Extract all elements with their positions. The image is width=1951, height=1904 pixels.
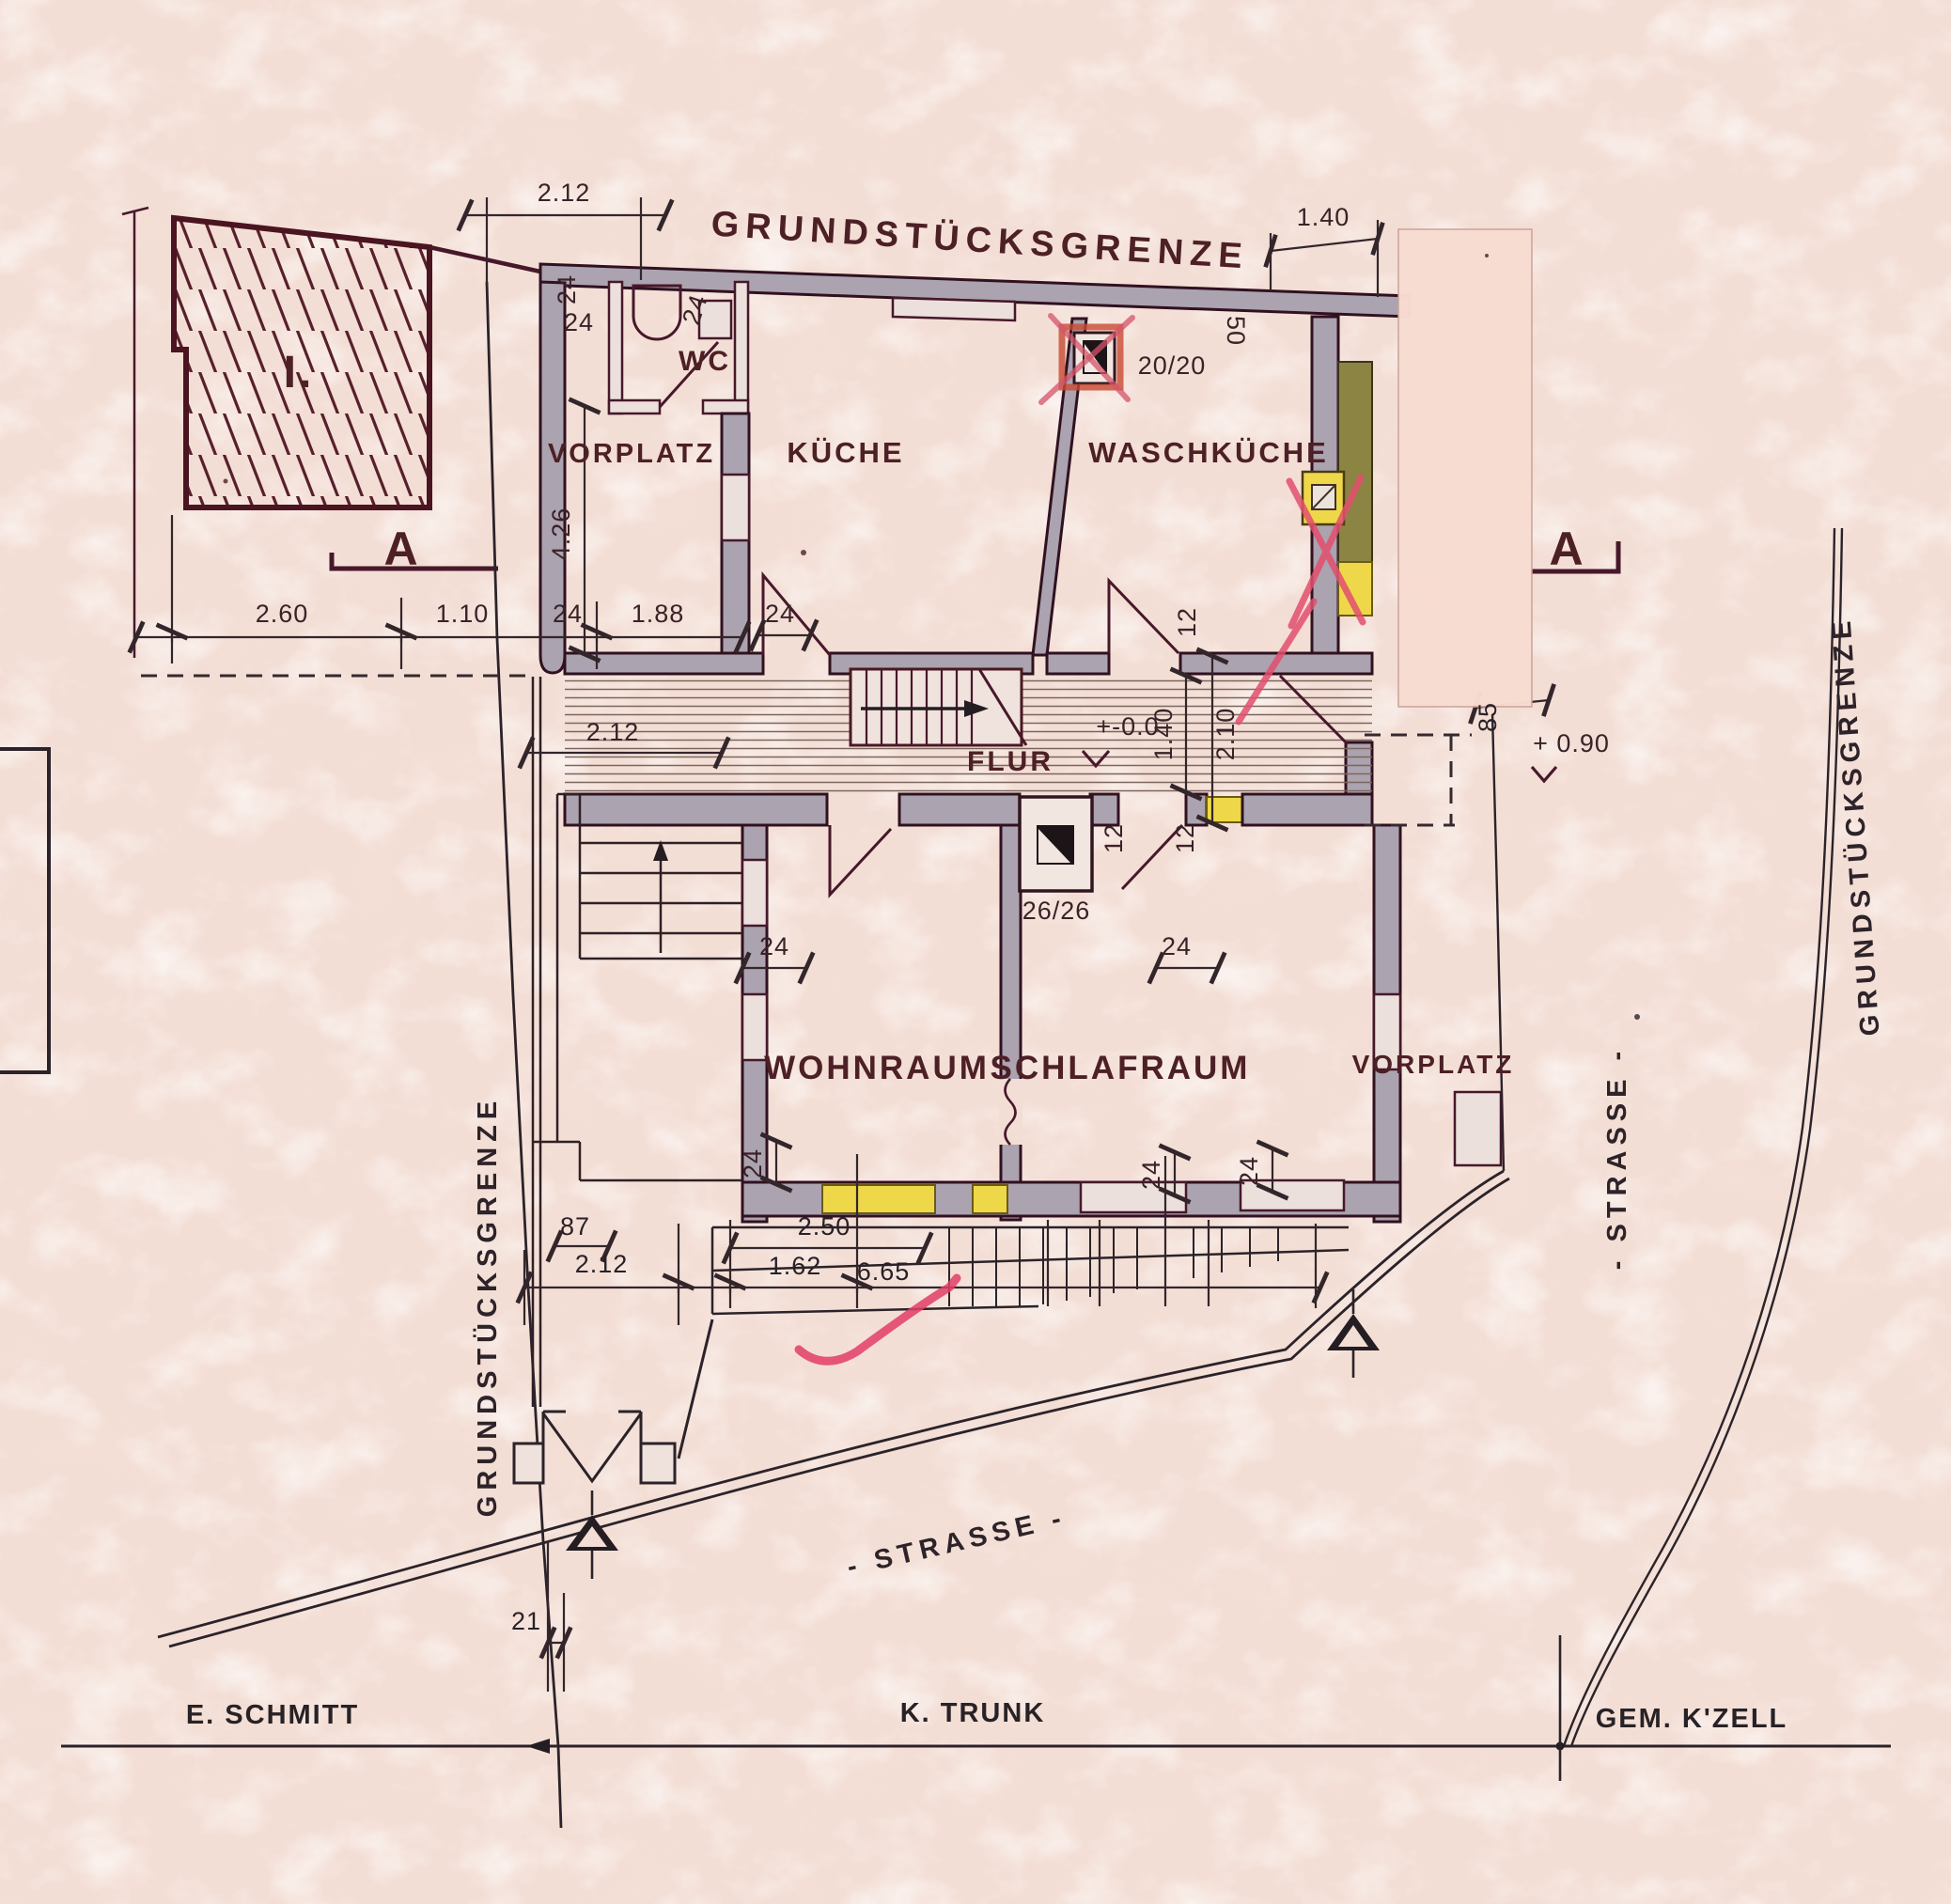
wall-flur-bot-3 [1090, 794, 1118, 825]
room-wc: WC [679, 346, 731, 377]
owner-right: GEM. K'ZELL [1596, 1704, 1788, 1734]
room-wohnraum: WOHNRAUM [764, 1050, 990, 1086]
window-vorplatz-kueche [722, 475, 749, 540]
wall-demolition-gap [999, 1079, 1022, 1145]
dim-162: 1.62 [769, 1252, 822, 1280]
room-waschkueche: WASCHKÜCHE [1088, 436, 1329, 469]
wall-wohn-schlaf [1001, 825, 1021, 1220]
chimney-26-26 [1020, 797, 1092, 891]
owner-left: E. SCHMITT [186, 1700, 359, 1730]
window-wohn-w1 [742, 860, 767, 926]
room-flur: FLUR [967, 746, 1054, 777]
floorplan-drawing: I. A A [0, 0, 1951, 1904]
level-street: + 0.90 [1533, 729, 1610, 757]
step-right-vorplatz [1455, 1092, 1501, 1165]
dim-wall-50: 50 [1222, 316, 1250, 346]
dim-wall24-b3: 24 [1235, 1156, 1263, 1186]
wall-flur-bot-2 [899, 794, 1020, 825]
wall-flur-top-1 [565, 653, 763, 674]
dim-wall24-wohn: 24 [759, 932, 789, 960]
dim-87: 87 [560, 1212, 590, 1241]
dim-top-right: 1.40 [1297, 203, 1350, 231]
window-kueche-north [893, 298, 1015, 320]
dim-row-110: 1.10 [436, 600, 490, 628]
wall-wc-left [609, 282, 622, 414]
wall-flur-top-3 [1047, 653, 1109, 674]
neighbor-building-label: I. [284, 348, 315, 398]
floorplan-scan: I. A A [0, 0, 1951, 1904]
dim-flur-140: 1.40 [1149, 708, 1178, 761]
dim-mid-width: 2.12 [586, 718, 640, 746]
dim-door-k: 24 [765, 600, 795, 628]
dim-low-212: 2.12 [575, 1250, 629, 1278]
paper-patch [1398, 229, 1532, 707]
dim-wall24-b1: 24 [739, 1148, 767, 1178]
room-schlafraum: SCHLAFRAUM [991, 1050, 1251, 1086]
section-letter-left: A [383, 523, 420, 575]
window-south-yellow-2 [973, 1185, 1007, 1213]
window-south-yellow-1 [822, 1185, 935, 1213]
wall-wc-bottom [609, 400, 660, 414]
wall-wc-jamb [703, 400, 748, 414]
window-wohn-w2 [742, 994, 767, 1060]
wall-wc-right [735, 282, 748, 414]
wall-overlay-olive [1338, 362, 1372, 562]
dim-right-85: 85 [1474, 702, 1502, 732]
room-vorplatz-right: VORPLATZ [1352, 1050, 1515, 1079]
window-south-1 [1081, 1182, 1186, 1212]
owner-center: K. TRUNK [900, 1698, 1046, 1728]
dim-gate-21: 21 [511, 1607, 541, 1635]
wall-flur-bot-4 [1186, 794, 1207, 825]
dim-wc-24a: 24 [553, 274, 581, 304]
stair-flur [851, 669, 1026, 745]
dim-wall24-b2: 24 [1137, 1160, 1165, 1190]
dim-row-260: 2.60 [256, 600, 309, 628]
dim-jamb-12a: 12 [1173, 607, 1201, 637]
dim-top-width: 2.12 [538, 179, 591, 207]
dim-jamb-12b: 12 [1100, 823, 1128, 853]
section-letter-right: A [1549, 523, 1585, 575]
boundary-label-left: GRUNDSTÜCKSGRENZE [472, 1096, 503, 1517]
dim-jamb-12c: 12 [1171, 823, 1199, 853]
dim-665: 6.65 [857, 1257, 911, 1286]
chimney-label-26: 26/26 [1022, 897, 1091, 925]
dim-row-188: 1.88 [632, 600, 685, 628]
dim-flur-210: 2.10 [1211, 708, 1240, 761]
dim-v-426: 4.26 [547, 507, 575, 561]
street-label-right: - STRASSE - [1602, 1046, 1632, 1270]
wall-flur-bot-5 [1242, 794, 1372, 825]
chimney-label-20: 20/20 [1138, 351, 1207, 380]
dim-wc-24b: 24 [564, 308, 594, 336]
room-vorplatz-top: VORPLATZ [548, 439, 715, 469]
dim-250: 2.50 [798, 1212, 851, 1241]
room-kueche: KÜCHE [787, 436, 904, 469]
wall-flur-bot-1 [565, 794, 827, 825]
dim-wall24-schlaf: 24 [1162, 932, 1192, 960]
dim-row-24: 24 [553, 600, 583, 628]
